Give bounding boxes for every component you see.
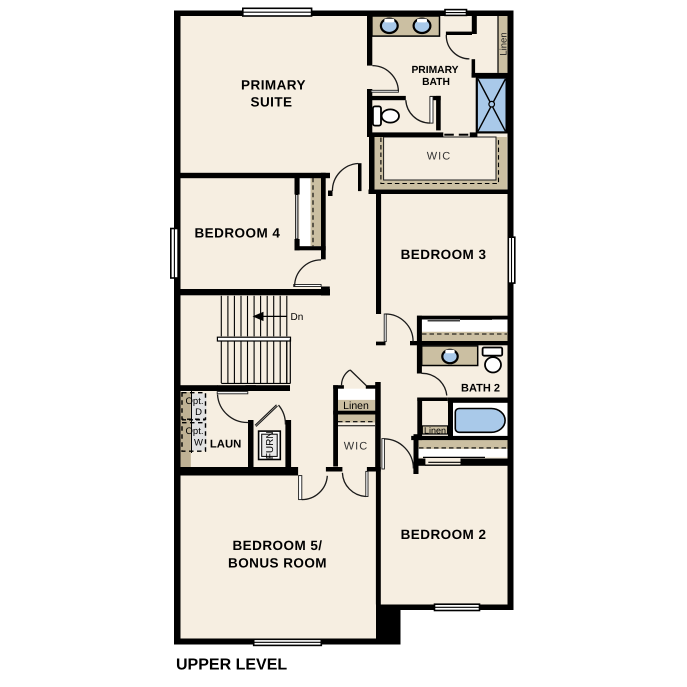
svg-text:Linen: Linen [424,425,446,435]
svg-text:BEDROOM 4: BEDROOM 4 [194,226,280,241]
svg-text:FURN: FURN [265,431,276,459]
svg-text:BATH 2: BATH 2 [461,383,500,395]
svg-text:Linen: Linen [498,32,509,55]
svg-text:WIC: WIC [427,151,451,163]
svg-text:Dn: Dn [291,312,304,323]
svg-text:BONUS ROOM: BONUS ROOM [228,556,327,571]
svg-text:Linen: Linen [343,400,369,412]
svg-text:BEDROOM 3: BEDROOM 3 [401,247,487,262]
svg-text:LAUN: LAUN [210,439,241,451]
svg-text:UPPER LEVEL: UPPER LEVEL [176,657,287,674]
svg-text:Opt.: Opt. [186,426,204,437]
svg-text:BATH: BATH [422,77,450,88]
svg-text:BEDROOM 2: BEDROOM 2 [401,527,487,542]
svg-text:BEDROOM 5/: BEDROOM 5/ [232,538,322,553]
svg-text:PRIMARY: PRIMARY [411,65,458,76]
svg-text:WIC: WIC [344,441,368,453]
svg-text:PRIMARY: PRIMARY [241,78,306,93]
svg-text:Opt.: Opt. [186,396,204,407]
svg-text:SUITE: SUITE [250,95,292,110]
svg-text:W: W [194,438,203,449]
svg-text:D: D [195,407,202,418]
